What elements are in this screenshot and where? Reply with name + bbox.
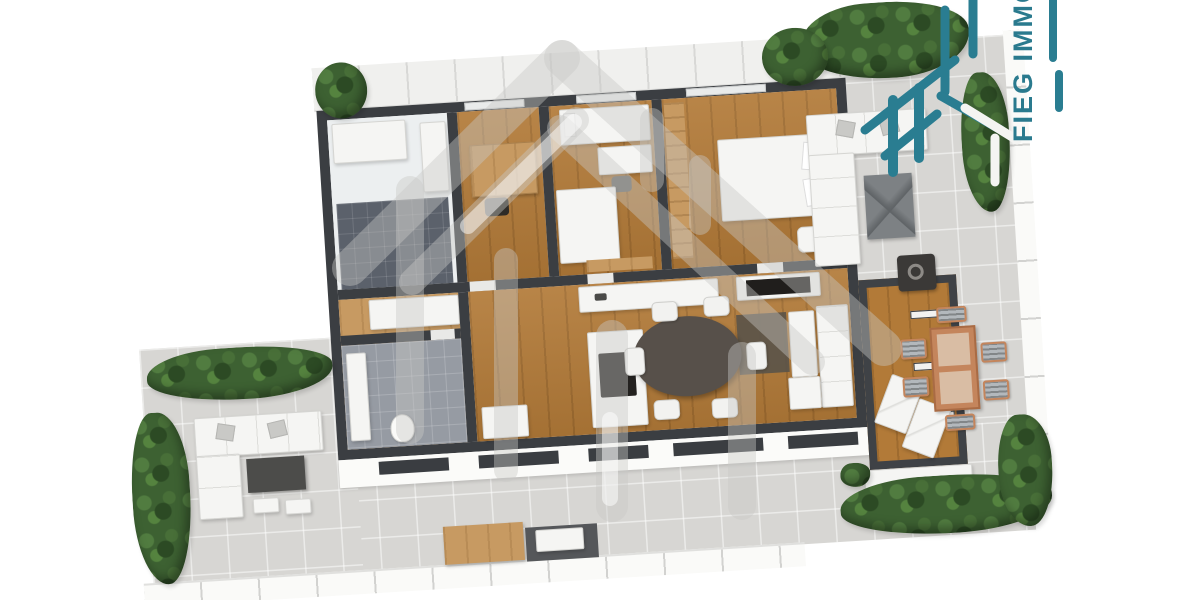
stool bbox=[285, 498, 312, 515]
dining-chair bbox=[651, 301, 678, 323]
coffee-table-left bbox=[246, 455, 306, 493]
outdoor-chair bbox=[902, 376, 929, 398]
dining-chair bbox=[746, 341, 768, 370]
sink-faucet bbox=[594, 293, 606, 301]
dining-chair bbox=[653, 399, 680, 421]
facade-window bbox=[788, 432, 859, 449]
facade-window bbox=[379, 457, 450, 474]
table-panel bbox=[939, 370, 973, 404]
shelf-cabinet bbox=[788, 310, 818, 378]
outdoor-sofa-right-arm bbox=[808, 152, 861, 267]
facade-window bbox=[673, 438, 764, 457]
shower-tray bbox=[331, 119, 407, 164]
outdoor-dining-table bbox=[929, 325, 980, 412]
outdoor-sofa-left-arm bbox=[196, 454, 244, 521]
office-desk bbox=[469, 141, 538, 197]
guest-bed bbox=[556, 186, 621, 264]
terrace-rug bbox=[864, 173, 916, 240]
sofa-chaise bbox=[788, 376, 822, 410]
fire-pit bbox=[897, 253, 937, 291]
dining-chair bbox=[711, 397, 738, 419]
outdoor-chair bbox=[936, 306, 967, 324]
facade-window bbox=[588, 445, 649, 462]
kitchen-stand bbox=[481, 404, 529, 439]
dashed-house-logo-icon bbox=[845, 0, 1075, 158]
dining-chair bbox=[703, 295, 730, 317]
outdoor-chair bbox=[980, 341, 1007, 363]
hall-wardrobe bbox=[368, 294, 460, 330]
kids-desk bbox=[597, 144, 653, 175]
outdoor-chair bbox=[945, 413, 976, 431]
table-panel bbox=[937, 333, 971, 367]
bottom-terrace-bench bbox=[535, 527, 584, 552]
bathroom-1-tiles bbox=[336, 197, 453, 290]
floorplan-render: FIEG IMMOB bbox=[0, 0, 1200, 600]
outdoor-chair bbox=[900, 338, 927, 360]
stool bbox=[253, 497, 280, 514]
apartment bbox=[316, 78, 867, 461]
facade-window bbox=[478, 451, 559, 469]
pillow bbox=[563, 113, 576, 138]
office-chair bbox=[484, 197, 509, 216]
dining-chair bbox=[624, 347, 646, 376]
outdoor-sofa-left bbox=[193, 410, 323, 458]
sofa bbox=[816, 304, 854, 408]
pillow bbox=[215, 423, 235, 441]
outdoor-chair bbox=[983, 379, 1010, 401]
bottom-terrace-table bbox=[443, 522, 525, 565]
fire-pit-ring bbox=[907, 263, 924, 280]
bathroom-1-vanity bbox=[419, 121, 449, 192]
brand-name-text: FIEG IMMOB bbox=[1008, 0, 1039, 142]
